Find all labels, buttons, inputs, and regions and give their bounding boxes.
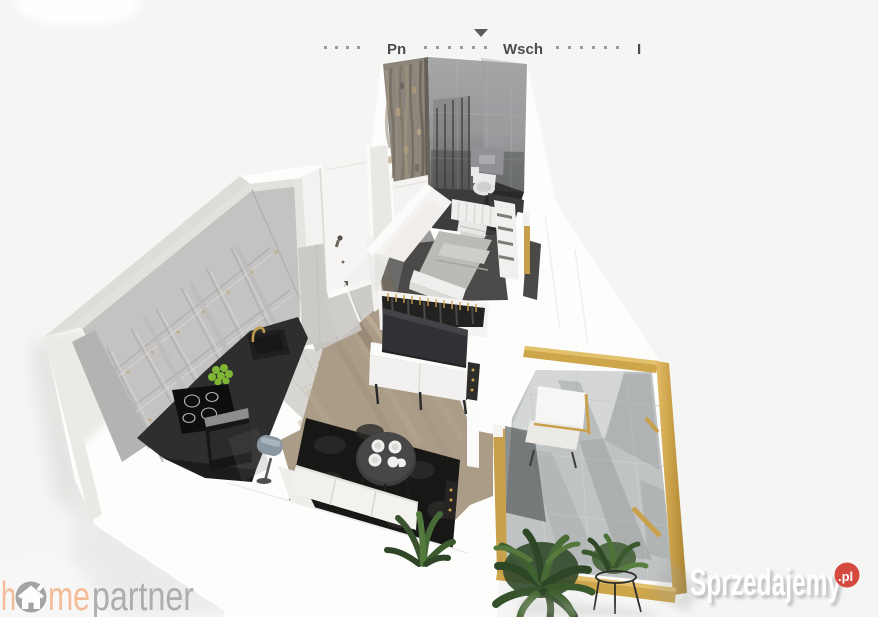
svg-text:me: me <box>48 573 90 617</box>
svg-text:I: I <box>637 41 641 58</box>
svg-text:Sprzedajemy: Sprzedajemy <box>690 562 841 604</box>
svg-text:.pl: .pl <box>838 569 853 584</box>
svg-text:partner: partner <box>92 573 194 617</box>
svg-text:Wsch: Wsch <box>503 41 543 58</box>
svg-text:Pn: Pn <box>387 41 406 58</box>
svg-text:h: h <box>1 573 16 617</box>
